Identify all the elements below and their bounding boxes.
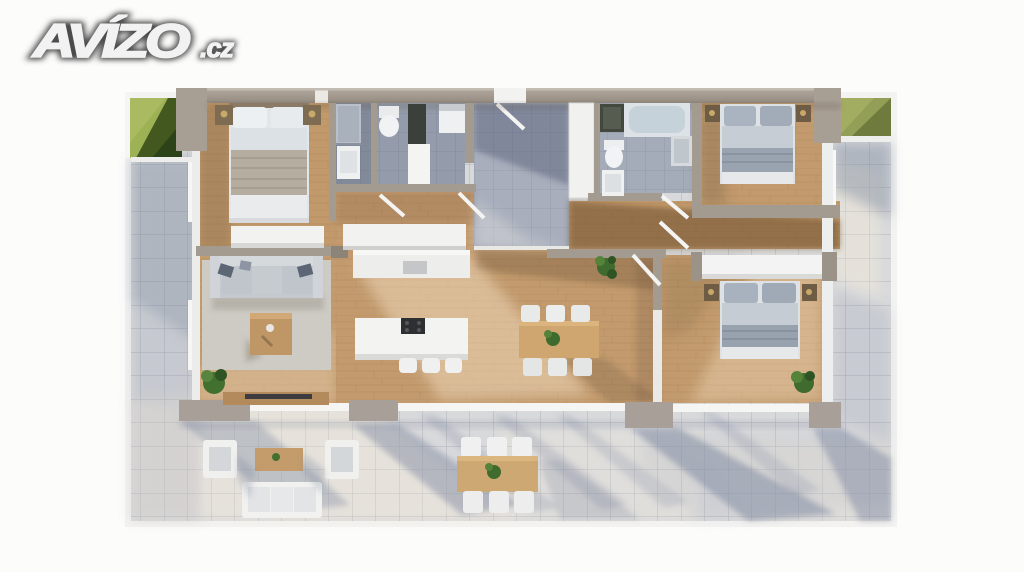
svg-text:AVÍZO: AVÍZO bbox=[31, 15, 190, 68]
svg-text:.cz: .cz bbox=[200, 33, 235, 63]
